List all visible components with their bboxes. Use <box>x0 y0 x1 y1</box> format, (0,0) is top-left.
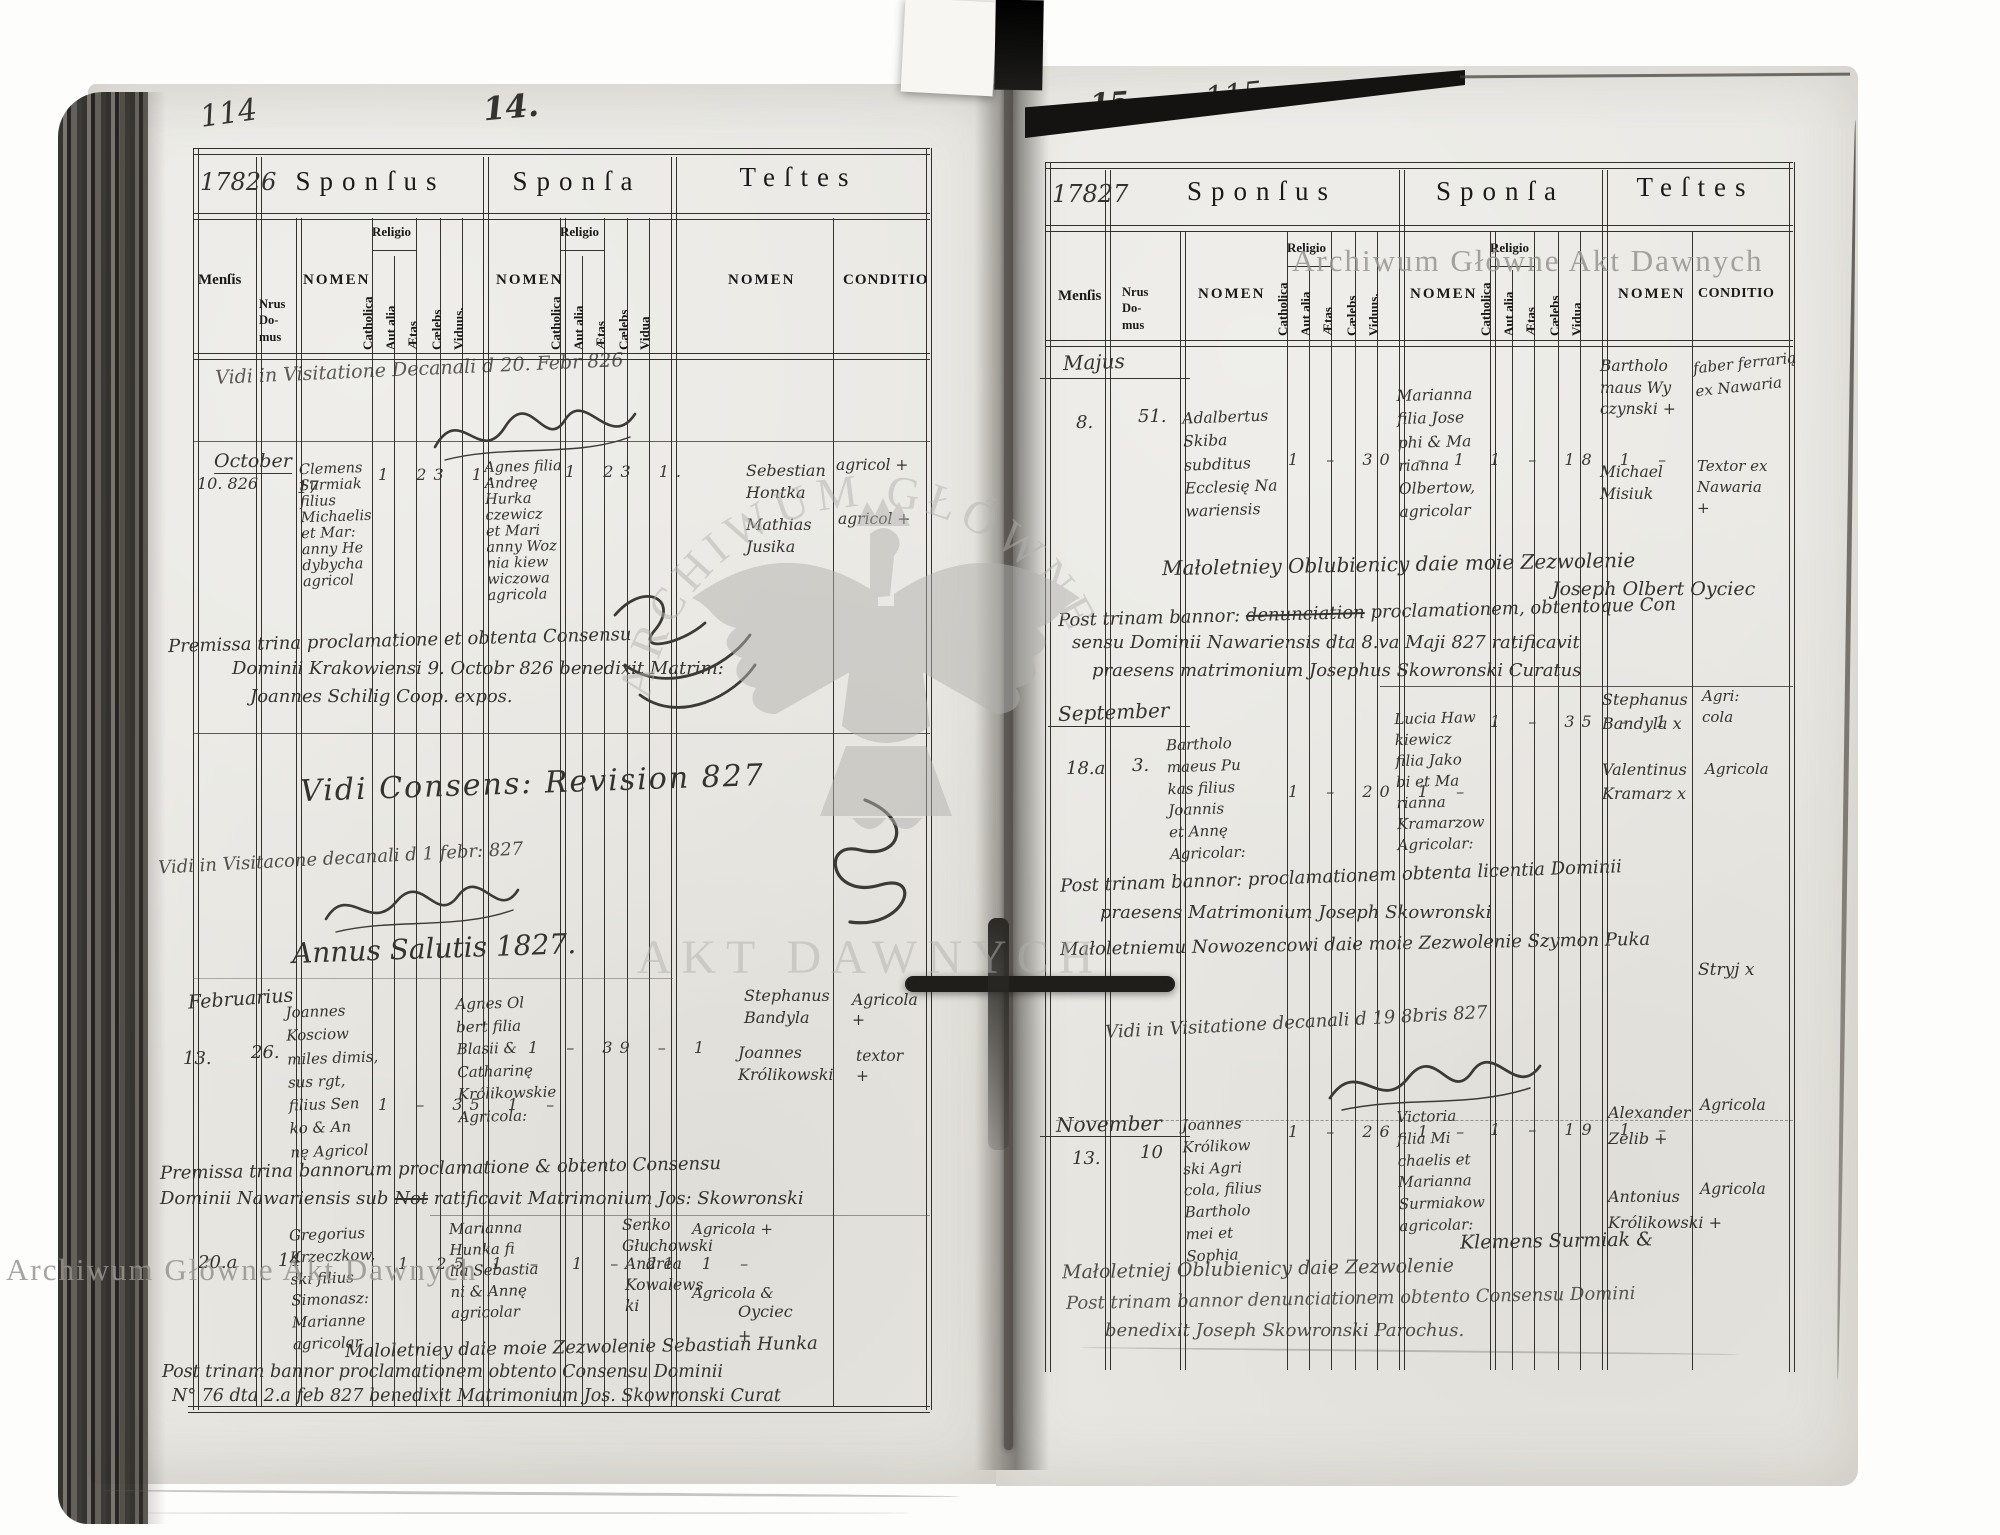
left-october-sponsa-name: Agnes filia Andreę Hurka czewicz et Mari… <box>484 459 565 604</box>
scanned-register-spread: 114 14. 17826 Sponſus Sponſa Teſtes Menſ… <box>0 0 2000 1535</box>
right-col-header-autalia-sponsus: Aut alia <box>1298 292 1314 336</box>
left-col-header-nomen-sponsa: NOMEN <box>496 272 564 289</box>
right-col-header-vidua-sponsa: Vidua <box>1569 303 1585 336</box>
right-col-rule-aetas2 <box>1558 232 1559 1370</box>
book-edge-shadow <box>120 92 166 1524</box>
right-november-witness2-condition: Agricola <box>1700 1180 1766 1198</box>
left-section-header-sponsa: Sponſa <box>483 166 671 197</box>
left-october-sponsus-marks: 1 23 1. <box>378 465 501 484</box>
left-entry20-banns-note-1: Post trinam bannor proclamationem obtent… <box>162 1362 723 1382</box>
left-col-header-vidua-sponsa: Vidua <box>637 317 653 350</box>
left-section-header-sponsus: Sponſus <box>258 166 483 197</box>
right-may-witness1-name: Bartholo maus Wy czynski + <box>1600 356 1676 421</box>
right-may-witness2-name: Michael Misiuk <box>1600 462 1663 505</box>
left-col-header-religio-sponsa: Religio <box>560 224 599 240</box>
right-table-top-rule <box>1045 162 1793 169</box>
left-october-banns-note-3: Joannes Schilig Coop. expos. <box>250 686 513 707</box>
left-col-header-caelebs-sponsa: Cælebs <box>616 310 632 350</box>
left-col-header-autalia-sponsus: Aut alia <box>383 306 399 350</box>
right-band1-bottom-rule <box>1045 225 1793 232</box>
right-september-witness1-condition: Agri: cola <box>1702 686 1739 728</box>
left-col-header-catholica-sponsus: Catholica <box>360 297 376 350</box>
right-col-header-catholica-sponsa: Catholica <box>1478 283 1494 336</box>
right-november-date: 13. <box>1072 1148 1101 1169</box>
right-col-header-viduus-sponsus: Viduus. <box>1366 293 1382 336</box>
right-outer-right-rule <box>1789 162 1795 1372</box>
left-entry20-sponsus-name: Gregorius Krzeczkow, ski filius Simonasz… <box>289 1223 379 1356</box>
right-col-header-catholica-sponsus: Catholica <box>1275 283 1291 336</box>
left-col-header-conditio: CONDITIO <box>843 272 929 289</box>
right-november-house-number: 10 <box>1140 1142 1163 1163</box>
left-february-note2-part-b: ratificavit Matrimonium Jos: Skowronski <box>434 1188 804 1209</box>
right-col-header-caelebs-sponsus: Cælebs <box>1344 296 1360 336</box>
left-february-sponsus-name: Joannes Kosciow miles dimis, sus rgt, fi… <box>285 998 382 1164</box>
left-religio-underline-sponsa <box>560 250 604 251</box>
right-may-witness2-condition: Textor ex Nawaria + <box>1697 456 1768 519</box>
right-col-header-nomen-sponsa: NOMEN <box>1410 286 1478 303</box>
right-september-witness2-condition: Agricola <box>1705 760 1769 778</box>
right-november-month: November <box>1056 1111 1162 1137</box>
archive-eagle-stamp: ARCHIWUM GŁÓWNE AKT DAWNYCH <box>600 398 1140 1018</box>
right-col-rule-caelebs2 <box>1580 232 1581 1370</box>
left-february-house-number: 26. <box>251 1042 280 1063</box>
right-september-witness2-name: Valentinus Kramarz x <box>1602 758 1687 806</box>
left-february-sponsa-name: Agnes Ol bert filia Blasii & Catharinę K… <box>455 991 557 1129</box>
right-col-header-aetas-sponsa: Ætas <box>1523 307 1539 336</box>
left-table-bottom-rule <box>188 1406 930 1413</box>
left-col-header-nomen-testes: NOMEN <box>728 272 796 289</box>
right-may-month: Majus <box>1063 349 1126 375</box>
right-november-permission-father: Klemens Surmiak & <box>1460 1228 1653 1253</box>
right-col-rule-caelebs1 <box>1377 232 1378 1370</box>
watermark-bottom-left: Archiwum Główne Akt Dawnych <box>6 1252 478 1288</box>
left-religio-underline-sponsus <box>372 250 416 251</box>
left-february-note2-part-a: Dominii Nawariensis sub <box>160 1188 388 1209</box>
right-col-rule-religio2 <box>1512 270 1513 1370</box>
right-col-header-mensis: Menſis <box>1058 288 1101 305</box>
right-col-header-nomen-sponsus: NOMEN <box>1198 286 1266 303</box>
left-col-header-nrus-domus: Nrus Do- mus <box>259 296 285 345</box>
left-col-header-religio-sponsus: Religio <box>372 224 411 240</box>
right-band2-bottom-rule <box>1045 340 1793 347</box>
watermark-top-right: Archiwum Główne Akt Dawnych <box>1292 243 1764 279</box>
right-year-label: 17827 <box>1052 180 1128 208</box>
left-october-sponsus-name: Clemens Surmiak filius Michaelis et Mar:… <box>299 461 374 591</box>
right-col-rule-autalia1 <box>1331 232 1332 1370</box>
right-col-rule-nomen1 <box>1287 232 1288 1370</box>
left-col-header-viduus-sponsus: Viduus. <box>451 307 467 350</box>
left-col-header-mensis: Menſis <box>198 272 241 289</box>
right-section-header-sponsus: Sponſus <box>1130 176 1394 207</box>
right-may-house-number: 51. <box>1138 406 1167 427</box>
left-february-witness2-condition: textor + <box>856 1046 903 1086</box>
left-col-header-autalia-sponsa: Aut alia <box>571 306 587 350</box>
right-col-header-nomen-testes: NOMEN <box>1618 286 1686 303</box>
left-col-rule-religio1 <box>394 256 395 1406</box>
left-col-header-aetas-sponsus: Ætas <box>405 321 421 350</box>
bottom-page-edge-line <box>100 1489 960 1498</box>
left-col-header-caelebs-sponsus: Cælebs <box>429 310 445 350</box>
left-col-header-nomen-sponsus: NOMEN <box>303 272 371 289</box>
right-november-witness1-name: Alexander Zelib + <box>1608 1100 1690 1151</box>
spine-cord-top <box>994 0 1044 90</box>
left-page-number: 14. <box>481 86 540 129</box>
left-february-note2-struck-word: Not <box>394 1188 428 1209</box>
right-section-header-testes: Teſtes <box>1602 172 1789 203</box>
right-november-sponsa-name: Victoria filia Mi chaelis et Marianna Su… <box>1396 1105 1485 1238</box>
right-col-header-nrus-domus: Nrus Do- mus <box>1122 284 1148 333</box>
right-col-header-conditio: CONDITIO <box>1698 286 1774 302</box>
left-entry20-banns-note-2: N° 76 dta 2.a feb 827 benedixit Matrimon… <box>172 1386 781 1406</box>
right-may-banns-note-3: praesens matrimonium Josephus Skowronski… <box>1092 660 1582 681</box>
right-september-witness1-name: Stephanus Bandyla x <box>1602 688 1688 736</box>
left-col-header-catholica-sponsa: Catholica <box>548 297 564 350</box>
right-november-sponsus-name: Joannes Królikow ski Agri cola, filius B… <box>1181 1113 1264 1268</box>
left-section-header-testes: Teſtes <box>671 162 926 193</box>
stamp-bottom-text: AKT DAWNYCH <box>637 931 1104 984</box>
right-col-rule-autalia2 <box>1534 232 1535 1370</box>
left-october-date: 10. 826 <box>197 474 258 493</box>
left-february-sponsa-marks: 1 – 39 – 1 <box>528 1038 711 1057</box>
right-col-rule-religio1 <box>1309 270 1310 1370</box>
left-outer-left-rule <box>193 148 199 1410</box>
right-majus-underline <box>1040 378 1190 379</box>
right-col-rule-nomen2 <box>1490 232 1496 1370</box>
right-may-note1-struck-word: denunciation <box>1246 602 1365 626</box>
right-september-permission-uncle: Stryj x <box>1698 960 1754 980</box>
right-september-sponsus-name: Bartholo maeus Pu kas filius Joannis et … <box>1166 733 1246 866</box>
left-col-rule-autalia1 <box>416 218 417 1406</box>
right-may-sponsa-name: Marianna filia Jose phi & Ma rianna Olbe… <box>1396 383 1476 524</box>
right-september-banns-note-2: praesens Matrimonium Joseph Skowronski <box>1100 902 1492 923</box>
bottom-page-edge-line2 <box>130 1512 910 1514</box>
right-may-sponsus-name: Adalbertus Skiba subditus Ecclesię Na wa… <box>1182 404 1279 523</box>
left-february-witness2-name: Joannes Królikowski <box>738 1042 834 1087</box>
right-col-header-caelebs-sponsa: Cælebs <box>1547 296 1563 336</box>
left-table-top-rule <box>193 148 930 155</box>
left-february-date: 13. <box>183 1048 212 1069</box>
left-october-month: October <box>214 450 292 474</box>
right-november-banns-note-2: benedixit Joseph Skowronski Parochus. <box>1105 1320 1464 1341</box>
left-february-banns-note-2: Dominii Nawariensis sub Not ratificavit … <box>160 1188 804 1209</box>
right-november-witness1-condition: Agricola <box>1700 1096 1766 1114</box>
left-entry20-witness1-condition: Agricola + <box>692 1220 773 1238</box>
right-col-rule-aetas1 <box>1355 232 1356 1370</box>
right-col-header-autalia-sponsa: Aut alia <box>1501 292 1517 336</box>
right-section-header-sponsa: Sponſa <box>1399 176 1602 207</box>
left-col-header-aetas-sponsa: Ætas <box>593 321 609 350</box>
right-may-banns-note-2: sensu Dominii Nawariensis dta 8.va Maji … <box>1072 632 1580 653</box>
ribbon-bookmark <box>901 0 998 96</box>
right-col-header-aetas-sponsus: Ætas <box>1320 307 1336 336</box>
right-september-sponsa-name: Lucia Haw kiewicz filia Jako bi et Ma ri… <box>1394 707 1485 856</box>
